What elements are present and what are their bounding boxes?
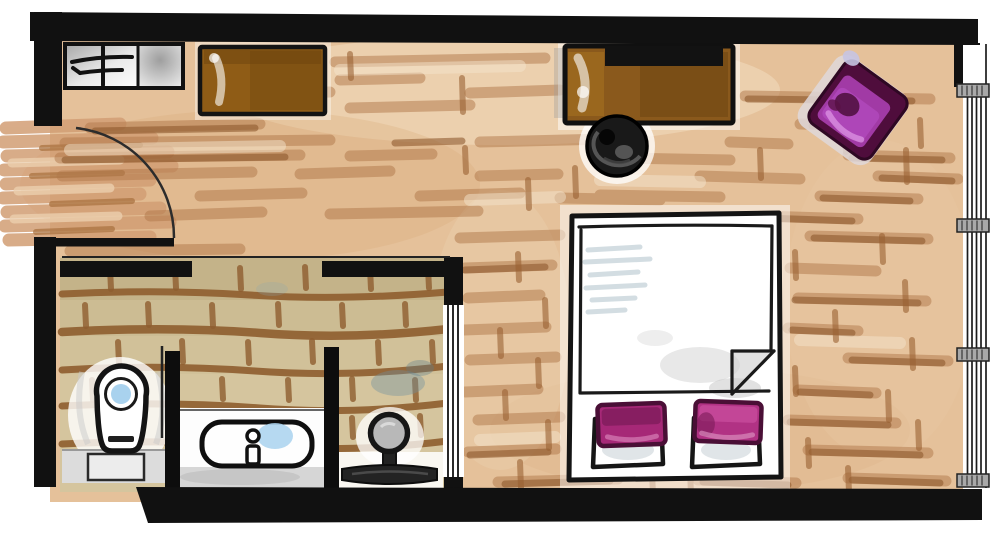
floor-plan-page	[0, 0, 1000, 533]
dresser	[200, 47, 325, 114]
floor-plan-drawing	[0, 0, 1000, 533]
toilet-water	[111, 384, 131, 404]
window-mullion	[957, 84, 989, 97]
sink-drain	[247, 430, 259, 442]
cushion-right	[694, 401, 761, 443]
desk-chair	[587, 116, 647, 176]
bathroom-wall-b	[322, 261, 448, 277]
window-wall	[957, 44, 1000, 489]
sink-water	[257, 423, 293, 449]
desk	[554, 46, 733, 123]
tv	[605, 46, 723, 66]
bathroom-wall-right-upper	[444, 257, 463, 305]
window-mullion	[957, 219, 989, 232]
bathroom-wall-a	[60, 261, 192, 277]
sink-faucet	[247, 446, 259, 464]
cushion-left	[597, 403, 665, 446]
double-bed	[569, 213, 781, 480]
wall-bottom	[136, 487, 982, 523]
window-mullion	[957, 474, 989, 487]
wall-left-upper	[34, 12, 62, 126]
bathroom	[60, 257, 448, 492]
shower-head	[371, 415, 408, 452]
window-mullion	[957, 348, 989, 361]
entry-door-leaf	[54, 238, 174, 247]
bathroom-sliding-door	[443, 305, 464, 477]
toilet	[62, 357, 172, 483]
vanity-sink	[179, 408, 324, 492]
wall-left-lower	[34, 237, 56, 487]
luggage-bench	[65, 44, 183, 88]
